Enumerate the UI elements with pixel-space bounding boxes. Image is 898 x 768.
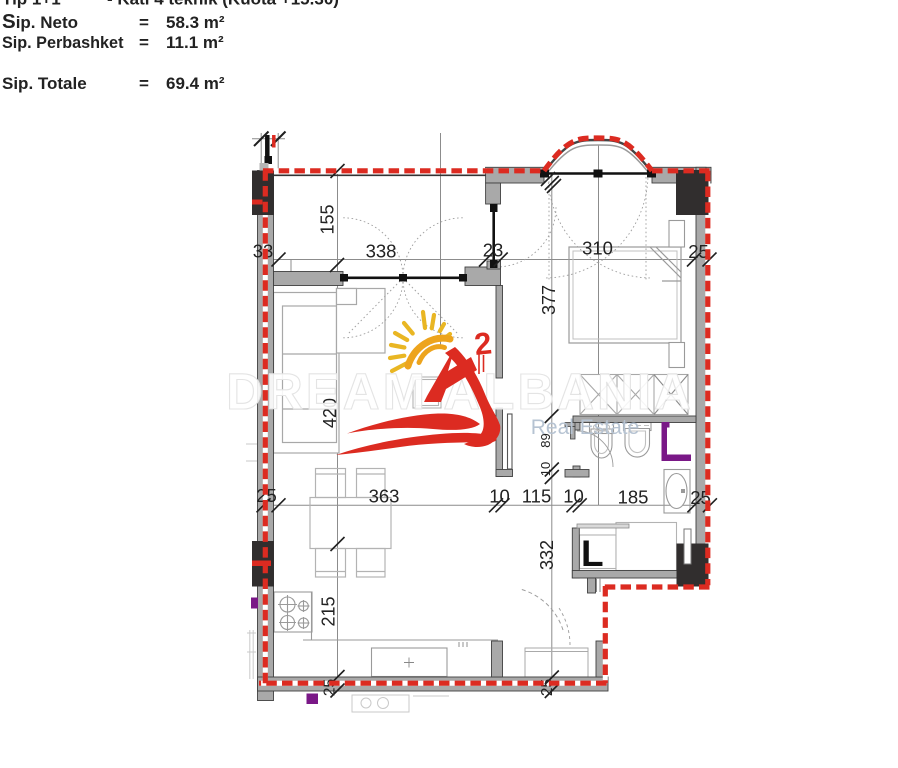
- svg-text:185: 185: [618, 487, 649, 508]
- svg-text:69.4 m²: 69.4 m²: [166, 74, 225, 93]
- svg-text:=: =: [139, 33, 149, 52]
- svg-text:115: 115: [522, 486, 552, 507]
- svg-text:Real Estate: Real Estate: [531, 416, 640, 439]
- svg-text:10: 10: [563, 486, 584, 507]
- svg-text:=: =: [139, 74, 149, 93]
- svg-text:L: L: [581, 533, 604, 574]
- svg-text:332: 332: [537, 540, 557, 570]
- svg-text:Sip. Neto: Sip. Neto: [2, 10, 78, 33]
- svg-text:10: 10: [538, 462, 553, 476]
- svg-text:10: 10: [489, 486, 510, 507]
- svg-text:23: 23: [483, 240, 504, 261]
- svg-text:Sip. Totale: Sip. Totale: [2, 74, 87, 93]
- svg-text:Tip 1+1: Tip 1+1: [2, 0, 61, 9]
- svg-text:338: 338: [366, 241, 397, 262]
- svg-text:- Kati 4 teknik (Kuota +15.30): - Kati 4 teknik (Kuota +15.30): [107, 0, 339, 9]
- svg-text:58.3 m²: 58.3 m²: [166, 13, 225, 32]
- svg-text:310: 310: [582, 238, 613, 259]
- svg-text:Sip. Perbashket: Sip. Perbashket: [2, 34, 124, 52]
- svg-text:=: =: [139, 13, 149, 32]
- svg-text:215: 215: [319, 596, 339, 626]
- svg-text:11.1 m²: 11.1 m²: [166, 33, 224, 52]
- svg-text:155: 155: [318, 204, 338, 234]
- svg-text:377: 377: [539, 285, 559, 315]
- svg-text:363: 363: [369, 486, 400, 507]
